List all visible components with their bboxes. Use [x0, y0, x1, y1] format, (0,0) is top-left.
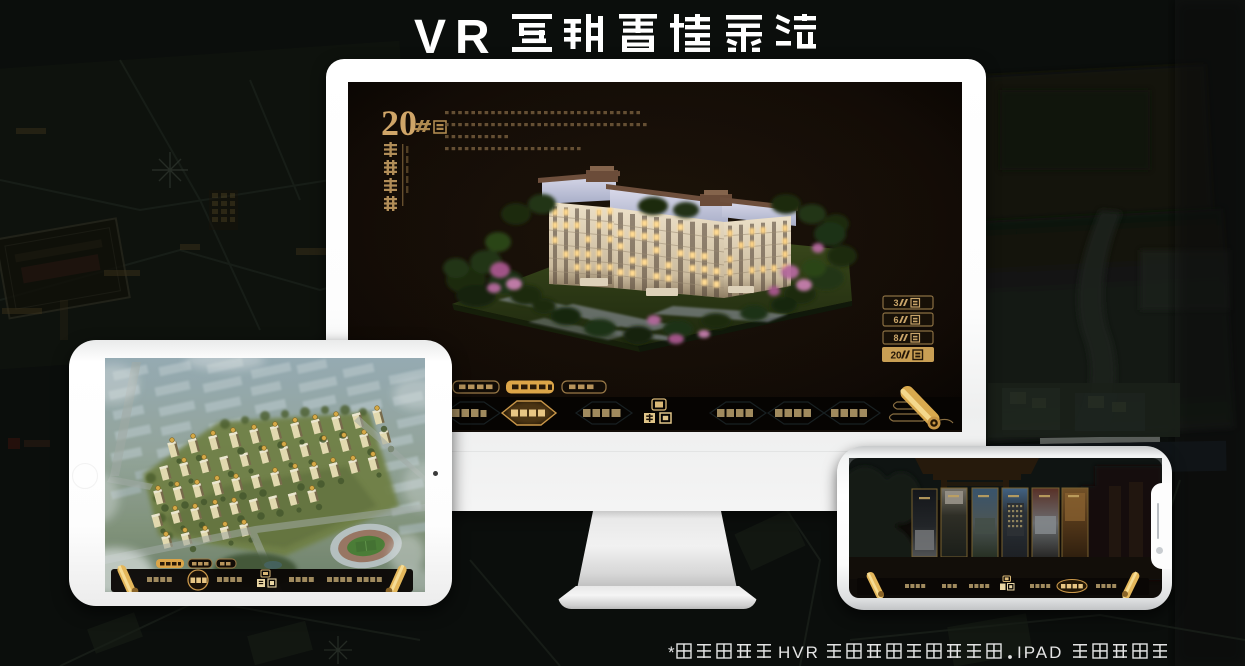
- svg-text:20: 20: [890, 351, 902, 362]
- svg-text:*: *: [668, 643, 675, 662]
- svg-text:IPAD: IPAD: [1017, 643, 1063, 662]
- svg-text:HVR: HVR: [778, 643, 820, 662]
- svg-text:20: 20: [381, 103, 417, 143]
- svg-text:6: 6: [893, 315, 898, 325]
- svg-text:3: 3: [893, 298, 898, 308]
- svg-text:8: 8: [893, 333, 898, 343]
- svg-text:VR: VR: [414, 11, 499, 62]
